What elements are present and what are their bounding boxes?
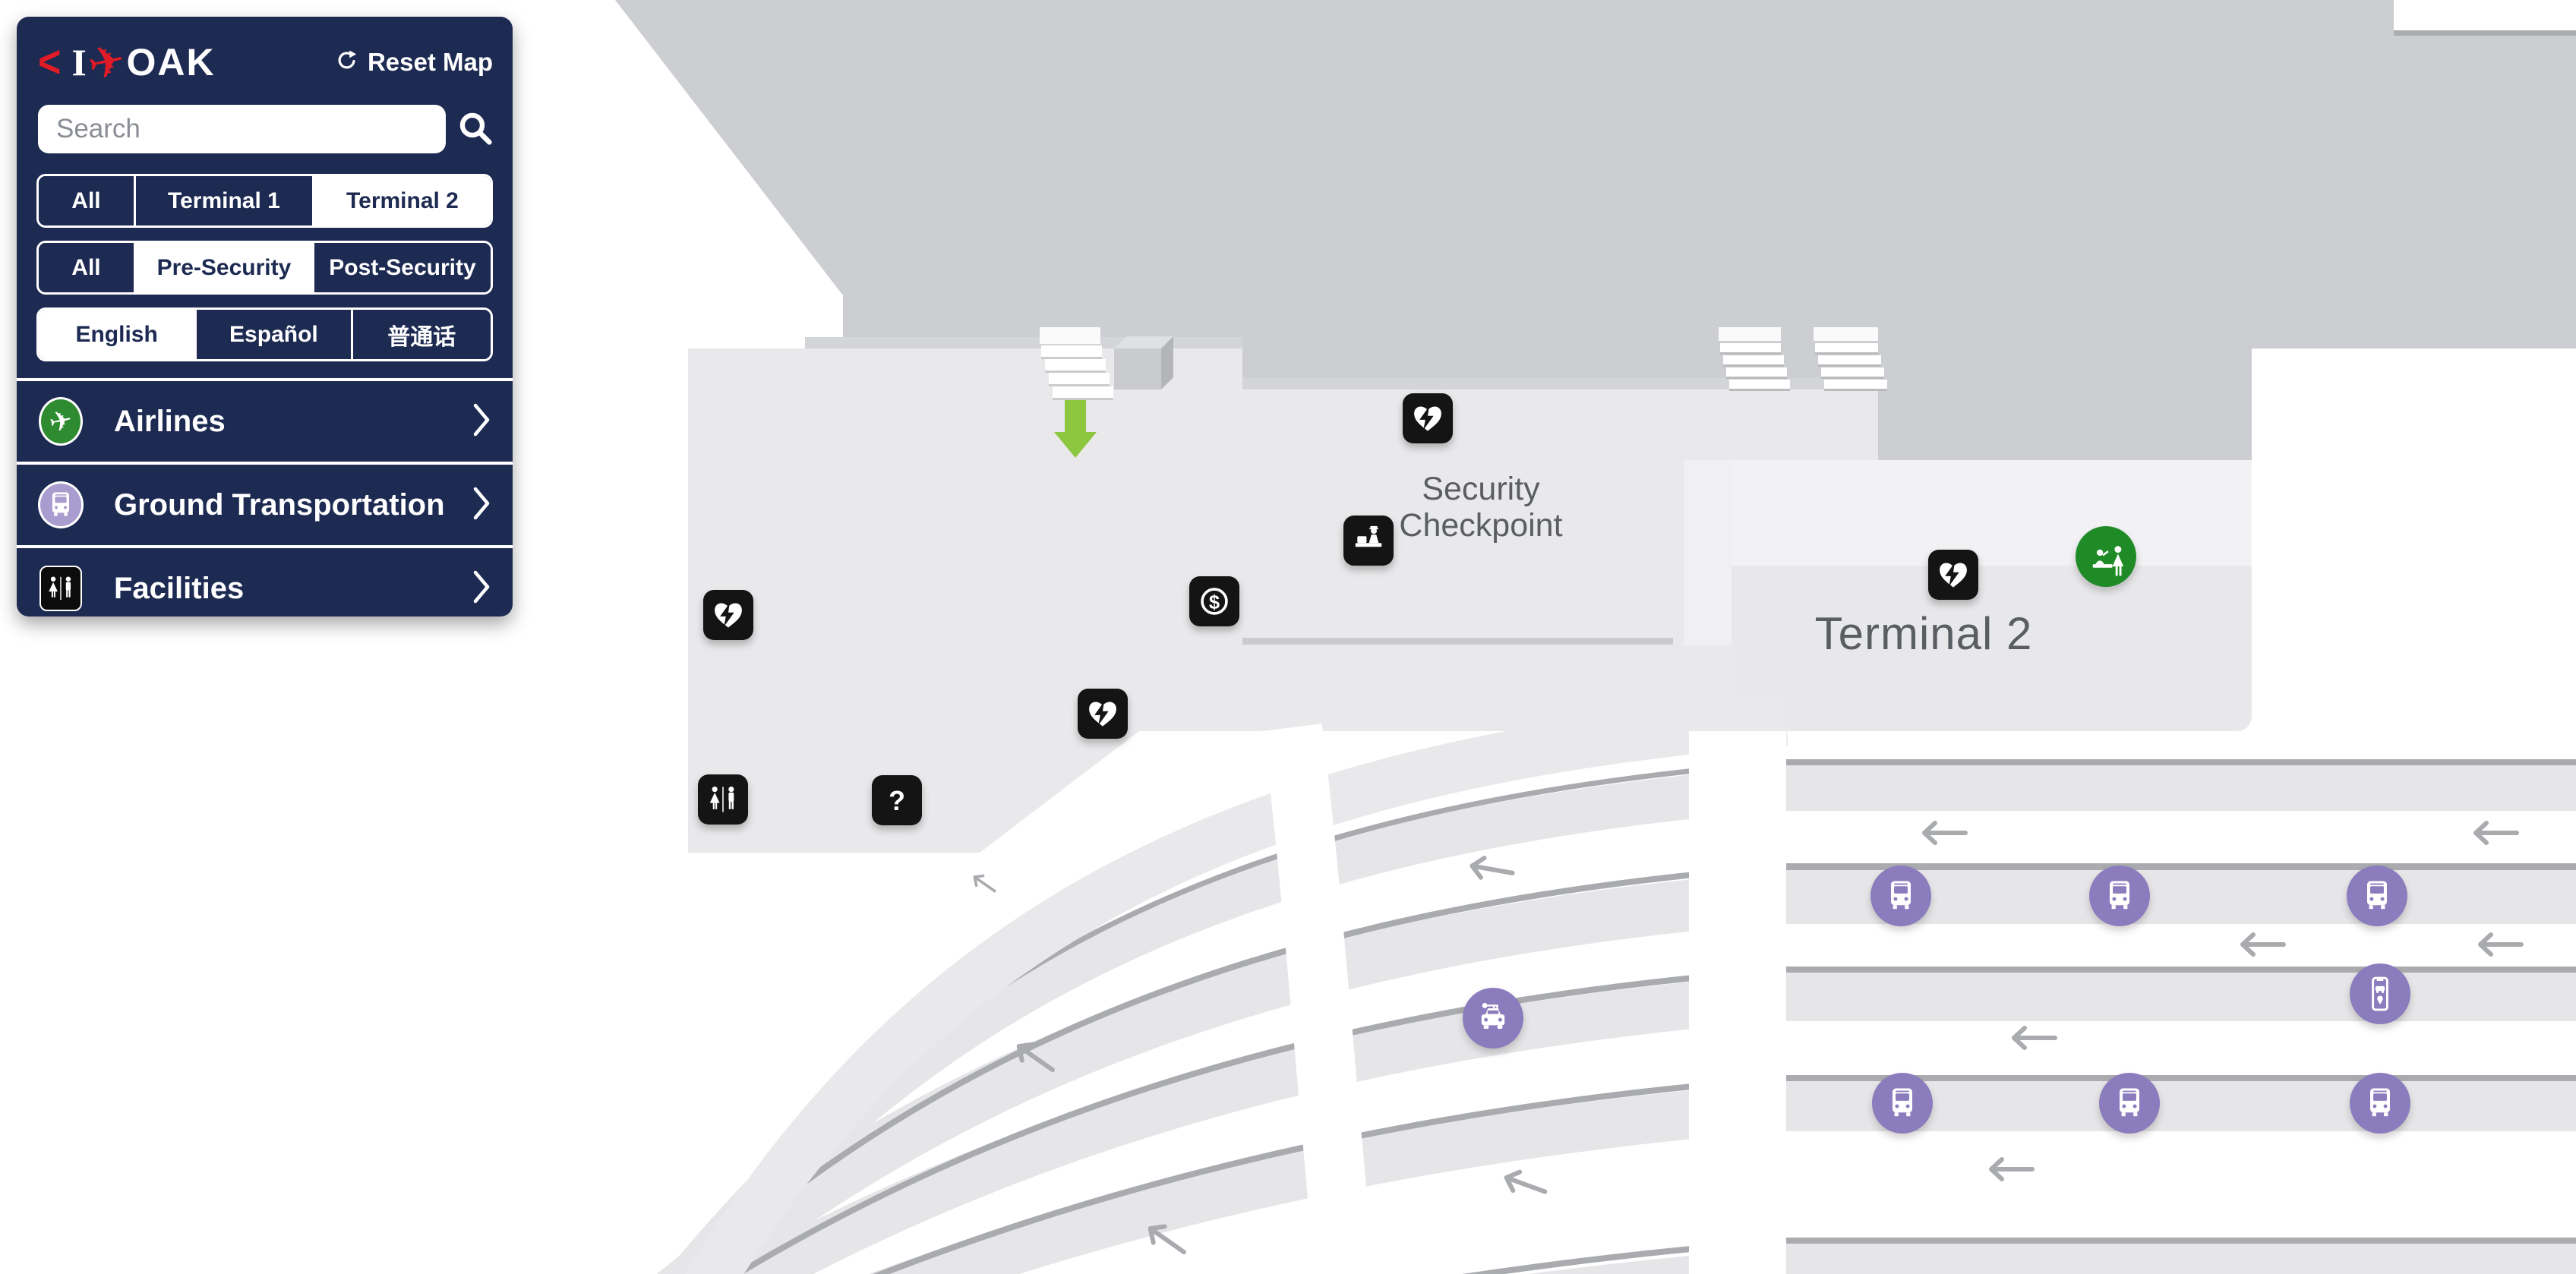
tab-post-security[interactable]: Post-Security [312,243,491,292]
chevron-right-icon [470,486,493,525]
category-label: Ground Transportation [114,488,470,522]
rental-car-icon[interactable] [1463,988,1523,1049]
app-logo[interactable]: < I ✈ OAK [38,36,216,88]
aed-icon[interactable] [1078,689,1128,739]
tab-terminal-all[interactable]: All [39,176,134,225]
bus-stop-icon[interactable] [2350,1073,2410,1134]
stairs-icon [1814,327,1887,391]
aed-icon[interactable] [703,590,753,640]
elevator-icon [1114,336,1173,389]
sidebar-item-ground-transportation[interactable]: Ground Transportation [17,465,513,545]
tab-pre-security[interactable]: Pre-Security [134,243,312,292]
chevron-right-icon [470,402,493,441]
aed-icon[interactable] [1928,550,1978,600]
pedestrian-crossing-band [1689,731,1786,1274]
sidebar-panel: < I ✈ OAK Reset Map All Terminal 1 [17,17,513,617]
restroom-icon[interactable] [698,774,748,825]
search-icon[interactable] [456,109,496,149]
tab-lang-espanol[interactable]: Español [194,310,350,359]
stairs-icon [1719,327,1790,391]
svg-text:$: $ [1209,592,1220,613]
checkin-desk-icon[interactable] [2076,526,2136,587]
bus-stop-icon[interactable] [2089,866,2150,926]
tab-security-all[interactable]: All [39,243,134,292]
roadway-straight [1786,759,2576,1274]
airport-code: OAK [126,40,215,84]
chevron-right-icon [470,569,493,608]
reset-icon [333,49,358,75]
svg-text:?: ? [889,786,905,816]
tab-lang-english[interactable]: English [39,310,194,359]
language-tabs: English Español 普通话 [36,307,493,361]
airport-map-app: Security Checkpoint Terminal 2 $ [0,0,2576,1274]
airplane-icon: ✈ [39,397,83,446]
tab-lang-mandarin[interactable]: 普通话 [351,310,491,359]
search-input[interactable] [38,105,446,153]
category-label: Airlines [114,405,470,439]
terminal-filter-tabs: All Terminal 1 Terminal 2 [36,174,493,228]
rideshare-app-icon[interactable] [2350,963,2410,1024]
security-filter-tabs: All Pre-Security Post-Security [36,241,493,295]
security-checkpoint-icon[interactable] [1343,516,1394,566]
airplane-logo-icon: ✈ [83,33,130,92]
bus-stop-icon[interactable] [1872,1073,1933,1134]
restroom-icon [39,566,82,611]
reset-map-label: Reset Map [368,48,493,77]
bus-icon [38,481,84,528]
information-icon[interactable]: ? [872,775,922,825]
back-chevron-icon[interactable]: < [38,36,61,89]
atm-icon[interactable]: $ [1189,576,1239,626]
bus-stop-icon[interactable] [1870,866,1931,926]
sidebar-header: < I ✈ OAK Reset Map [17,17,513,94]
terminal2-label: Terminal 2 [1741,607,2106,660]
reset-map-button[interactable]: Reset Map [333,48,493,77]
bus-stop-icon[interactable] [2099,1073,2160,1134]
category-label: Facilities [114,572,470,606]
terminal2-upper-band [1732,460,2252,566]
search-bar [17,94,513,161]
bus-stop-icon[interactable] [2347,866,2407,926]
sidebar-item-airlines[interactable]: ✈ Airlines [17,381,513,462]
aed-icon[interactable] [1403,393,1453,443]
tab-terminal-1[interactable]: Terminal 1 [134,176,312,225]
sidebar-item-facilities[interactable]: Facilities [17,548,513,617]
tab-terminal-2[interactable]: Terminal 2 [312,176,491,225]
